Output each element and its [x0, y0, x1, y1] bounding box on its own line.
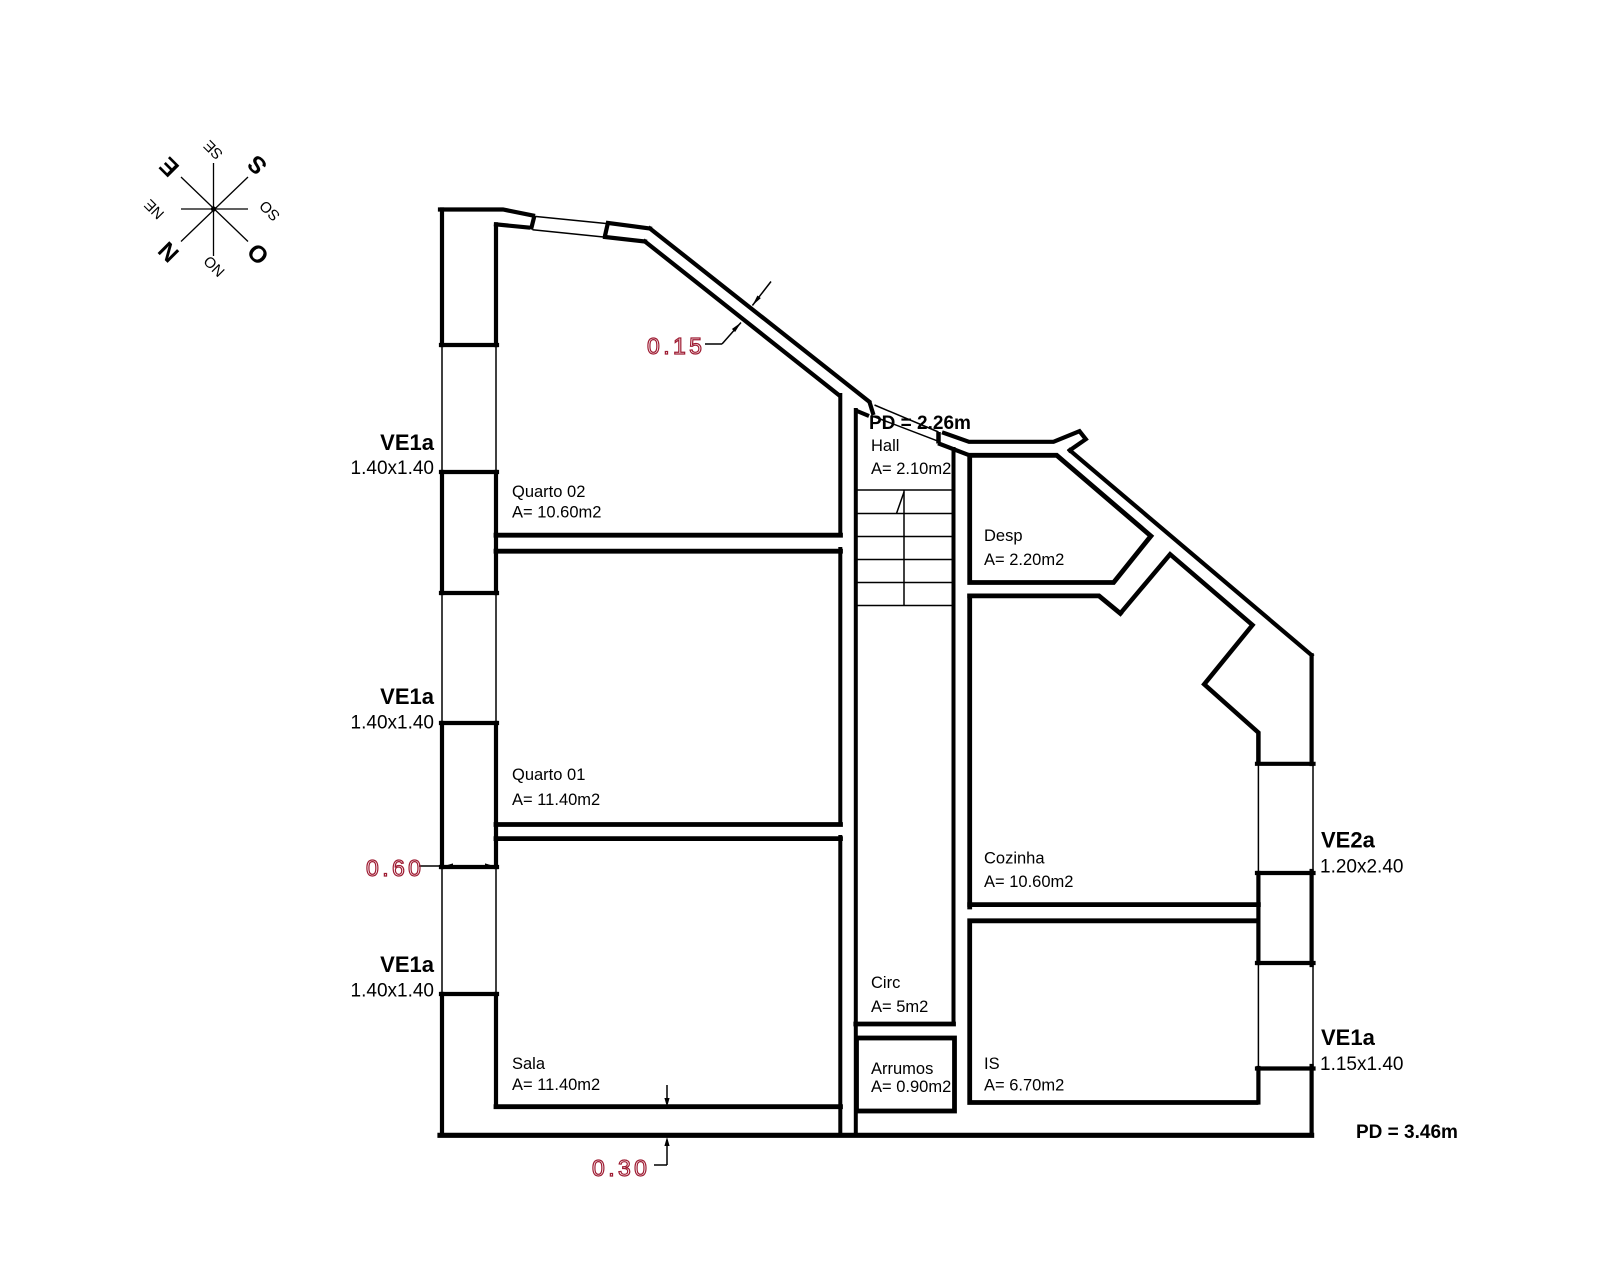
svg-text:A= 11.40m2: A= 11.40m2 — [512, 1076, 600, 1094]
svg-text:1.15x1.40: 1.15x1.40 — [1320, 1054, 1403, 1075]
svg-text:Quarto 01: Quarto 01 — [512, 766, 585, 784]
svg-text:VE1a: VE1a — [380, 684, 435, 709]
svg-text:IS: IS — [984, 1055, 1000, 1073]
svg-text:Hall: Hall — [871, 437, 899, 455]
svg-text:A= 10.60m2: A= 10.60m2 — [512, 504, 601, 522]
svg-text:0.60: 0.60 — [366, 855, 424, 881]
svg-text:Quarto 02: Quarto 02 — [512, 483, 585, 501]
svg-text:A= 2.20m2: A= 2.20m2 — [984, 551, 1064, 569]
svg-text:0.30: 0.30 — [592, 1155, 650, 1181]
svg-text:A= 2.10m2: A= 2.10m2 — [871, 460, 951, 478]
svg-text:A= 0.90m2: A= 0.90m2 — [871, 1078, 951, 1096]
svg-text:PD = 3.46m: PD = 3.46m — [1356, 1122, 1458, 1143]
svg-text:Circ: Circ — [871, 974, 900, 992]
svg-text:VE1a: VE1a — [1321, 1025, 1376, 1050]
svg-text:Arrumos: Arrumos — [871, 1060, 933, 1078]
svg-text:1.20x2.40: 1.20x2.40 — [1320, 857, 1403, 878]
svg-text:A= 11.40m2: A= 11.40m2 — [512, 791, 600, 809]
svg-text:A= 10.60m2: A= 10.60m2 — [984, 873, 1073, 891]
svg-text:VE2a: VE2a — [1321, 828, 1376, 853]
svg-text:A= 6.70m2: A= 6.70m2 — [984, 1077, 1064, 1095]
svg-text:A= 5m2: A= 5m2 — [871, 998, 928, 1016]
svg-text:Cozinha: Cozinha — [984, 850, 1045, 868]
svg-text:1.40x1.40: 1.40x1.40 — [351, 713, 434, 734]
svg-text:VE1a: VE1a — [380, 952, 435, 977]
svg-text:PD = 2.26m: PD = 2.26m — [869, 413, 971, 434]
svg-text:VE1a: VE1a — [380, 430, 435, 455]
svg-text:Desp: Desp — [984, 527, 1023, 545]
svg-text:1.40x1.40: 1.40x1.40 — [351, 981, 434, 1002]
svg-text:Sala: Sala — [512, 1055, 546, 1073]
svg-text:1.40x1.40: 1.40x1.40 — [351, 458, 434, 479]
svg-text:0.15: 0.15 — [647, 333, 705, 359]
